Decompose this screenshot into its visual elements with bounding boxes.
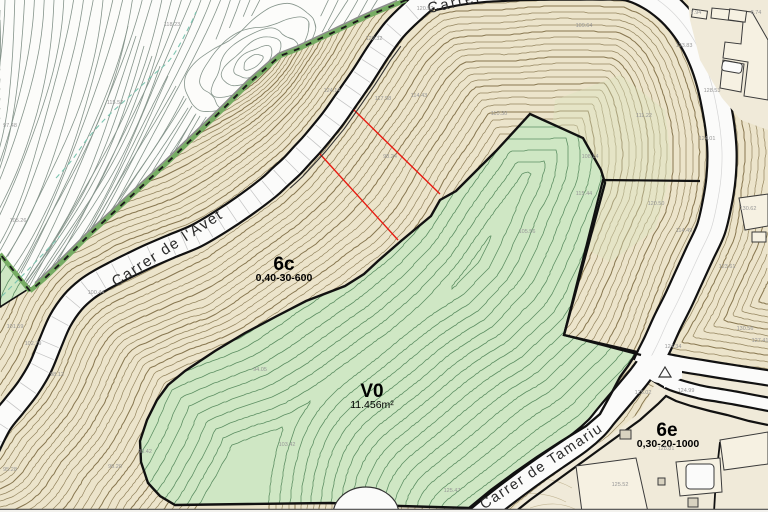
svg-text:117.58: 117.58 (375, 96, 391, 102)
svg-text:103.42: 103.42 (279, 442, 296, 448)
svg-text:98.12: 98.12 (50, 372, 64, 378)
svg-text:128.81: 128.81 (658, 446, 675, 452)
svg-text:118.23: 118.23 (164, 22, 180, 28)
svg-text:127.41: 127.41 (752, 338, 768, 344)
svg-text:99.20: 99.20 (108, 464, 122, 470)
svg-text:0,40-30-600: 0,40-30-600 (256, 272, 313, 284)
svg-text:105.26: 105.26 (10, 218, 27, 224)
svg-text:7.94: 7.94 (691, 10, 702, 16)
svg-text:128.53: 128.53 (704, 88, 721, 94)
svg-text:124.34: 124.34 (665, 344, 682, 350)
svg-text:111.22: 111.22 (636, 113, 652, 119)
svg-text:120.52: 120.52 (417, 6, 434, 12)
svg-text:123.83: 123.83 (676, 43, 693, 49)
svg-text:125.52: 125.52 (612, 482, 629, 488)
svg-text:130.62: 130.62 (740, 206, 757, 212)
svg-text:108.14: 108.14 (582, 154, 599, 160)
svg-text:102.79: 102.79 (25, 341, 42, 347)
svg-text:114.49: 114.49 (676, 228, 692, 234)
svg-text:100.44: 100.44 (88, 290, 105, 296)
svg-text:124.99: 124.99 (678, 388, 695, 394)
svg-text:110.30: 110.30 (491, 111, 507, 117)
svg-text:94.05: 94.05 (253, 367, 267, 373)
svg-text:125.02: 125.02 (635, 390, 652, 396)
svg-text:115.44: 115.44 (576, 191, 592, 197)
svg-text:122.32: 122.32 (366, 36, 383, 42)
svg-text:101.59: 101.59 (7, 324, 24, 330)
svg-text:124.14: 124.14 (324, 88, 341, 94)
svg-text:120.50: 120.50 (648, 201, 665, 207)
svg-text:130.56: 130.56 (737, 326, 754, 332)
svg-text:93.42: 93.42 (138, 449, 152, 455)
svg-text:95.28: 95.28 (3, 467, 17, 473)
svg-text:98.24: 98.24 (383, 154, 397, 160)
svg-text:123.61: 123.61 (719, 264, 736, 270)
svg-text:8.74: 8.74 (751, 10, 762, 16)
svg-text:114.43: 114.43 (411, 93, 427, 99)
svg-text:109.64: 109.64 (576, 23, 593, 29)
svg-text:105.56: 105.56 (519, 229, 536, 235)
svg-text:11.456m²: 11.456m² (350, 399, 394, 411)
svg-text:115.57: 115.57 (107, 100, 123, 106)
svg-text:124.01: 124.01 (699, 136, 716, 142)
svg-text:125.47: 125.47 (444, 488, 461, 494)
svg-text:97.48: 97.48 (3, 123, 17, 129)
